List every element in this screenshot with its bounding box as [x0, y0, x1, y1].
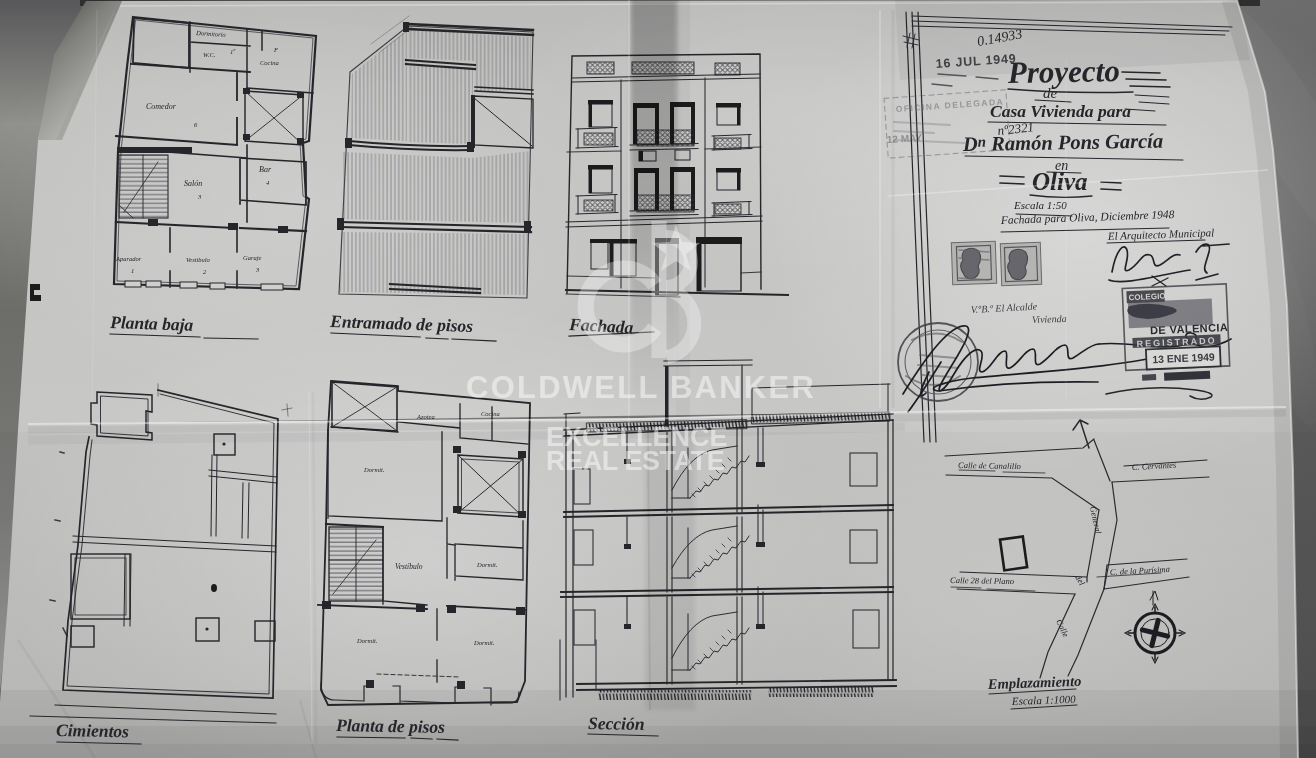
- svg-text:COLDWELL BANKER: COLDWELL BANKER: [466, 370, 818, 405]
- svg-text:Escala 1:1000: Escala 1:1000: [1011, 693, 1077, 707]
- svg-text:W.C.: W.C.: [203, 51, 216, 58]
- svg-text:Bar: Bar: [259, 165, 272, 174]
- svg-text:Vivienda: Vivienda: [1032, 313, 1067, 325]
- svg-text:Casa Vivienda para: Casa Vivienda para: [990, 101, 1131, 121]
- svg-text:Dormit.: Dormit.: [356, 637, 378, 644]
- svg-text:Dormit.: Dormit.: [473, 639, 495, 646]
- svg-text:Planta baja: Planta baja: [109, 312, 194, 335]
- svg-text:de: de: [1043, 85, 1058, 101]
- svg-text:Calle 28 del Plano: Calle 28 del Plano: [950, 575, 1014, 586]
- svg-text:Vestíbulo: Vestíbulo: [186, 256, 211, 263]
- svg-text:REAL ESTATE: REAL ESTATE: [546, 446, 727, 476]
- svg-text:Planta de pisos: Planta de pisos: [335, 715, 445, 737]
- svg-text:Salón: Salón: [184, 179, 202, 188]
- svg-text:1: 1: [131, 267, 134, 274]
- svg-text:Vestíbulo: Vestíbulo: [395, 562, 423, 571]
- svg-text:COLEGIO: COLEGIO: [1128, 292, 1165, 303]
- svg-text:Sección: Sección: [588, 713, 645, 734]
- svg-text:Escala 1:50: Escala 1:50: [1013, 199, 1067, 211]
- svg-text:Dormit.: Dormit.: [476, 561, 498, 568]
- svg-text:Cocina: Cocina: [481, 410, 500, 417]
- svg-text:Comedor: Comedor: [146, 102, 177, 111]
- svg-text:Calle de Canalillo: Calle de Canalillo: [958, 460, 1021, 471]
- svg-text:Garaje: Garaje: [243, 254, 262, 261]
- svg-text:Proyecto: Proyecto: [1007, 53, 1120, 90]
- svg-text:Cimientos: Cimientos: [56, 720, 129, 741]
- svg-text:Cocina: Cocina: [260, 59, 279, 66]
- svg-text:Aparador: Aparador: [115, 255, 142, 262]
- svg-text:Dormit.: Dormit.: [363, 466, 385, 473]
